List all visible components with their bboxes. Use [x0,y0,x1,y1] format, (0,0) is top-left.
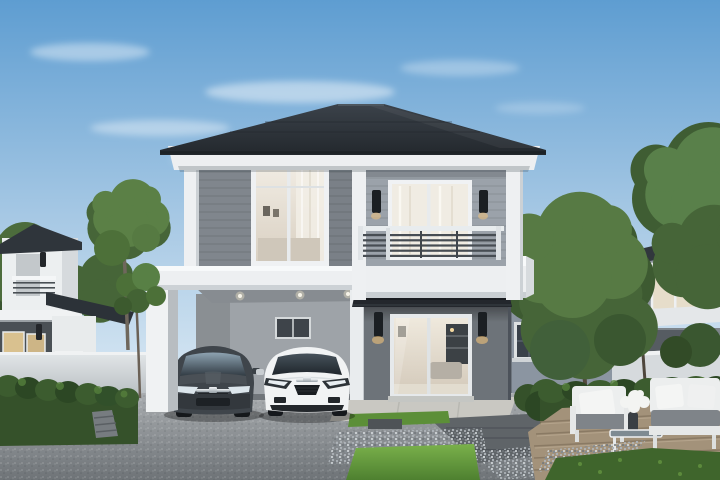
car-intake [196,398,230,406]
first-floor-entry [352,288,512,402]
wall-lamp [374,312,383,337]
scene-canvas [0,0,720,480]
throw-pillow [687,384,716,409]
main-house [144,104,546,423]
lawn [346,444,480,480]
stepping-pavers [368,419,402,429]
throw-pillow [655,384,684,410]
left-house-lamp [40,252,46,267]
glass-sliding-door [394,318,468,394]
seat-cushion [573,414,628,429]
door-step [388,396,474,402]
wall-lamp [372,190,381,213]
railing-top-rail [358,226,504,231]
vase [628,412,638,432]
carport-ceiling [196,288,366,303]
car-mirror [256,369,264,375]
carport-column [146,288,168,412]
car-grille [294,385,320,395]
car-badge [209,387,217,393]
wall-lamp [479,190,488,213]
picture-frame [263,206,270,216]
architectural-rendering [0,0,720,480]
interior-shelving [446,324,468,364]
interior-sofa [430,362,462,379]
car-windshield [272,354,342,376]
bedroom-window [256,168,324,261]
car-badge [303,377,311,382]
seat-cushion [651,410,720,427]
wall-lamp [478,312,487,337]
